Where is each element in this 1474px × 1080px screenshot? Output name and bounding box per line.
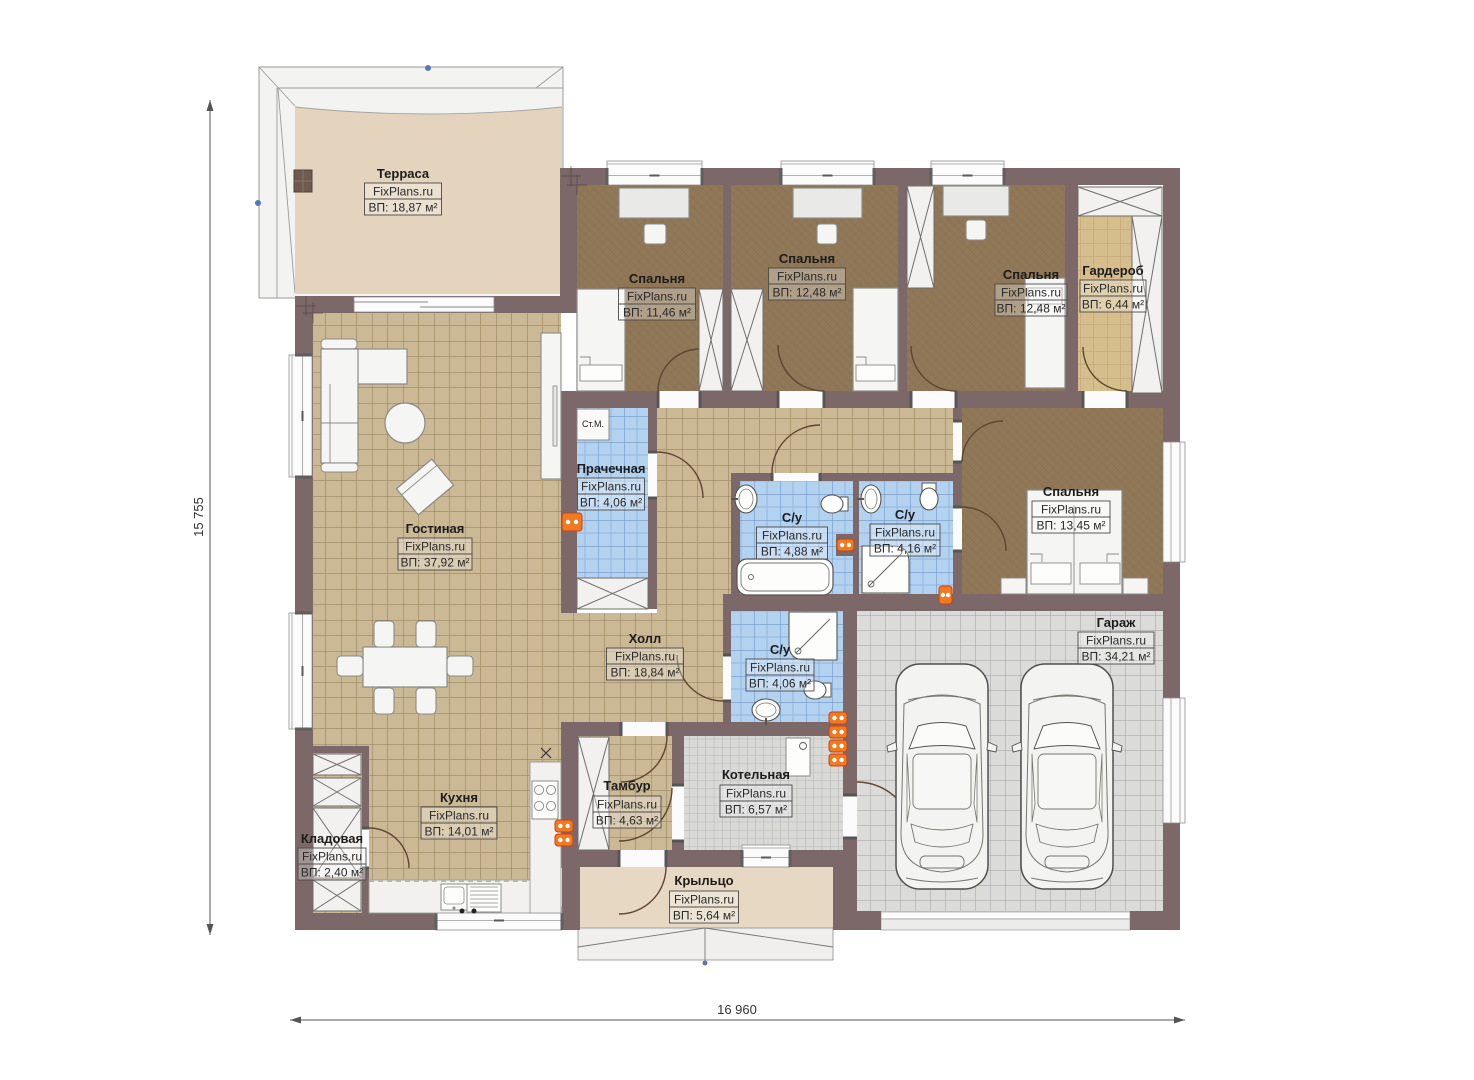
svg-text:FixPlans.ru: FixPlans.ru [627, 290, 687, 304]
svg-text:Спальня: Спальня [629, 271, 685, 286]
svg-text:FixPlans.ru: FixPlans.ru [750, 661, 810, 675]
svg-text:FixPlans.ru: FixPlans.ru [726, 787, 786, 801]
svg-text:ВП: 34,21 м²: ВП: 34,21 м² [1082, 650, 1151, 664]
svg-text:ВП: 4,06 м²: ВП: 4,06 м² [580, 496, 642, 510]
svg-text:ВП: 37,92 м²: ВП: 37,92 м² [401, 556, 470, 570]
svg-text:Спальня: Спальня [779, 251, 835, 266]
svg-text:FixPlans.ru: FixPlans.ru [875, 526, 935, 540]
svg-text:Терраса: Терраса [377, 166, 430, 181]
svg-text:FixPlans.ru: FixPlans.ru [405, 540, 465, 554]
svg-text:Прачечная: Прачечная [577, 461, 646, 476]
svg-text:FixPlans.ru: FixPlans.ru [373, 185, 433, 199]
svg-text:Гардероб: Гардероб [1082, 263, 1143, 278]
svg-text:FixPlans.ru: FixPlans.ru [1041, 503, 1101, 517]
svg-text:FixPlans.ru: FixPlans.ru [615, 650, 675, 664]
svg-text:Гостиная: Гостиная [406, 521, 465, 536]
svg-text:Кухня: Кухня [440, 790, 478, 805]
svg-text:ВП: 2,40 м²: ВП: 2,40 м² [301, 866, 363, 880]
svg-text:ВП: 12,48 м²: ВП: 12,48 м² [773, 286, 842, 300]
svg-text:FixPlans.ru: FixPlans.ru [302, 850, 362, 864]
svg-text:С/у: С/у [770, 642, 791, 657]
svg-text:ВП: 11,46 м²: ВП: 11,46 м² [623, 306, 691, 320]
svg-text:С/у: С/у [782, 510, 803, 525]
svg-text:ВП: 6,44 м²: ВП: 6,44 м² [1082, 298, 1144, 312]
svg-text:ВП: 12,48 м²: ВП: 12,48 м² [997, 302, 1066, 316]
svg-text:FixPlans.ru: FixPlans.ru [1083, 282, 1143, 296]
svg-text:FixPlans.ru: FixPlans.ru [429, 809, 489, 823]
svg-text:15 755: 15 755 [191, 497, 206, 537]
svg-text:Гараж: Гараж [1097, 615, 1137, 630]
svg-text:ВП: 4,16 м²: ВП: 4,16 м² [874, 542, 936, 556]
svg-text:Спальня: Спальня [1003, 267, 1059, 282]
svg-text:ВП: 4,63 м²: ВП: 4,63 м² [596, 814, 658, 828]
svg-text:Крыльцо: Крыльцо [674, 873, 733, 888]
svg-text:FixPlans.ru: FixPlans.ru [762, 529, 822, 543]
svg-text:ВП: 13,45 м²: ВП: 13,45 м² [1037, 519, 1106, 533]
svg-text:ВП: 4,06 м²: ВП: 4,06 м² [749, 677, 811, 691]
svg-text:ВП: 18,87 м²: ВП: 18,87 м² [369, 201, 438, 215]
svg-text:FixPlans.ru: FixPlans.ru [674, 893, 734, 907]
svg-text:ВП: 4,88 м²: ВП: 4,88 м² [761, 545, 823, 559]
svg-text:FixPlans.ru: FixPlans.ru [597, 798, 657, 812]
svg-text:ВП: 5,64 м²: ВП: 5,64 м² [673, 909, 735, 923]
svg-text:Тамбур: Тамбур [603, 778, 650, 793]
svg-text:Котельная: Котельная [722, 767, 790, 782]
svg-text:С/у: С/у [895, 507, 916, 522]
svg-text:Холл: Холл [629, 631, 662, 646]
svg-text:FixPlans.ru: FixPlans.ru [581, 480, 641, 494]
svg-text:ВП: 14,01 м²: ВП: 14,01 м² [425, 825, 494, 839]
svg-text:FixPlans.ru: FixPlans.ru [1001, 286, 1061, 300]
svg-text:Ст.М.: Ст.М. [582, 419, 604, 429]
svg-text:FixPlans.ru: FixPlans.ru [777, 270, 837, 284]
svg-text:16 960: 16 960 [717, 1002, 757, 1017]
svg-text:ВП: 18,84 м²: ВП: 18,84 м² [611, 666, 680, 680]
svg-text:ВП: 6,57 м²: ВП: 6,57 м² [725, 803, 787, 817]
svg-text:Спальня: Спальня [1043, 484, 1099, 499]
svg-text:FixPlans.ru: FixPlans.ru [1086, 634, 1146, 648]
svg-text:Кладовая: Кладовая [301, 831, 363, 846]
